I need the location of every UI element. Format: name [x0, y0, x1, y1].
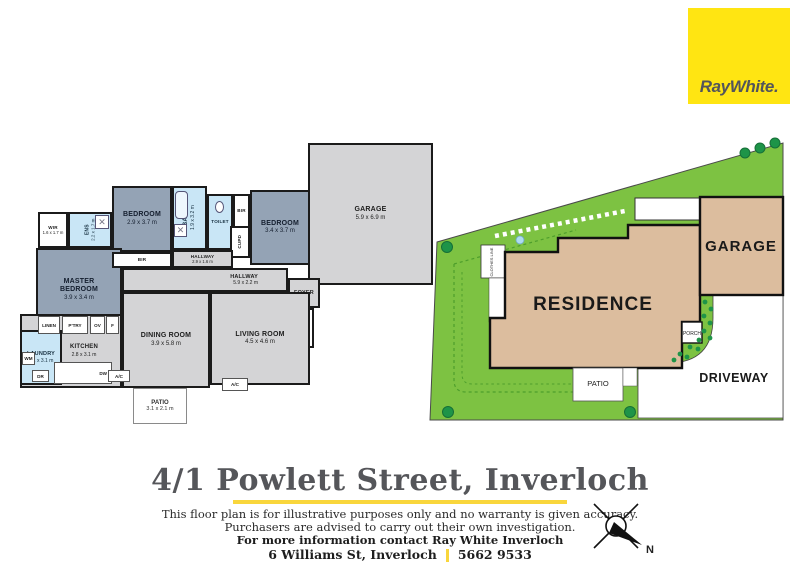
office-phone: 5662 9533 [458, 547, 532, 562]
dryer: DR [32, 370, 49, 382]
shower-icon: ✕ [174, 224, 187, 237]
shower-icon: ✕ [95, 215, 109, 229]
ac-unit-1: A/C [108, 370, 130, 382]
north-label: N [646, 544, 654, 556]
path-strip [489, 278, 505, 322]
water-tap-icon [516, 236, 524, 244]
patio-path [623, 368, 637, 386]
bathtub-icon [175, 191, 188, 219]
pantry: P'TRY [62, 316, 88, 334]
patio-label: PATIO [587, 379, 609, 388]
contact-line: For more information contact Ray White I… [0, 533, 800, 547]
room-patio-fp: PATIO 3.1 x 2.1 m [133, 388, 187, 424]
office-contact-row: 6 Williams St, Inverloch5662 9533 [0, 547, 800, 562]
garage-label: GARAGE [705, 238, 777, 255]
room-hallway-2: HALLWAY 5.9 x 2.2 m [122, 268, 288, 292]
room-bedroom-1: BEDROOM 2.9 x 3.7 m [112, 186, 172, 252]
room-garage: GARAGE 5.9 x 6.9 m [308, 143, 433, 285]
room-dining: DINING ROOM 3.9 x 5.8 m [122, 292, 210, 388]
cupboard: CUPD [230, 226, 250, 258]
room-bedroom-2: BEDROOM 3.4 x 3.7 m [250, 190, 310, 265]
side-path [635, 198, 700, 220]
driveway-label: DRIVEWAY [699, 371, 769, 385]
site-plan: CLOTHES LINE RESIDENCE GARAGE DRIVEWAY [428, 132, 788, 424]
office-address: 6 Williams St, Inverloch [268, 547, 437, 562]
toilet-icon [215, 201, 224, 213]
oven: OV [90, 316, 105, 334]
fridge: F [106, 316, 119, 334]
clothes-line-label: CLOTHES LINE [489, 247, 494, 276]
robe-bir-2: BIR [233, 194, 250, 228]
residence-label: RESIDENCE [533, 294, 653, 315]
room-living: LIVING ROOM 4.5 x 4.6 m [210, 292, 310, 385]
linen-cupboard: LINEN [38, 316, 60, 334]
robe-bir-1: BIR [112, 252, 172, 268]
room-wir: WIR 1.6 x 1.7 m [38, 212, 68, 248]
room-hallway-1: HALLWAY 2.9 x 1.6 m [172, 250, 233, 268]
porch-label: PORCH [683, 331, 701, 337]
divider [446, 549, 449, 562]
kitchen-bench: DW [54, 362, 112, 384]
brand-text: RayWhite. [688, 77, 790, 97]
address-underline [233, 500, 567, 504]
property-address: 4/1 Powlett Street, Inverloch [0, 463, 800, 498]
floorplan-page: RayWhite. GARAGE 5.9 x 6.9 m BEDROOM 2.9… [0, 0, 800, 566]
compass-icon: N [580, 498, 664, 560]
disclaimer-line-1: This floor plan is for illustrative purp… [0, 507, 800, 521]
ac-unit-2: A/C [222, 378, 248, 391]
washing-machine: WM [22, 352, 35, 365]
ray-white-logo: RayWhite. [688, 8, 790, 104]
disclaimer-line-2: Purchasers are advised to carry out thei… [0, 520, 800, 534]
